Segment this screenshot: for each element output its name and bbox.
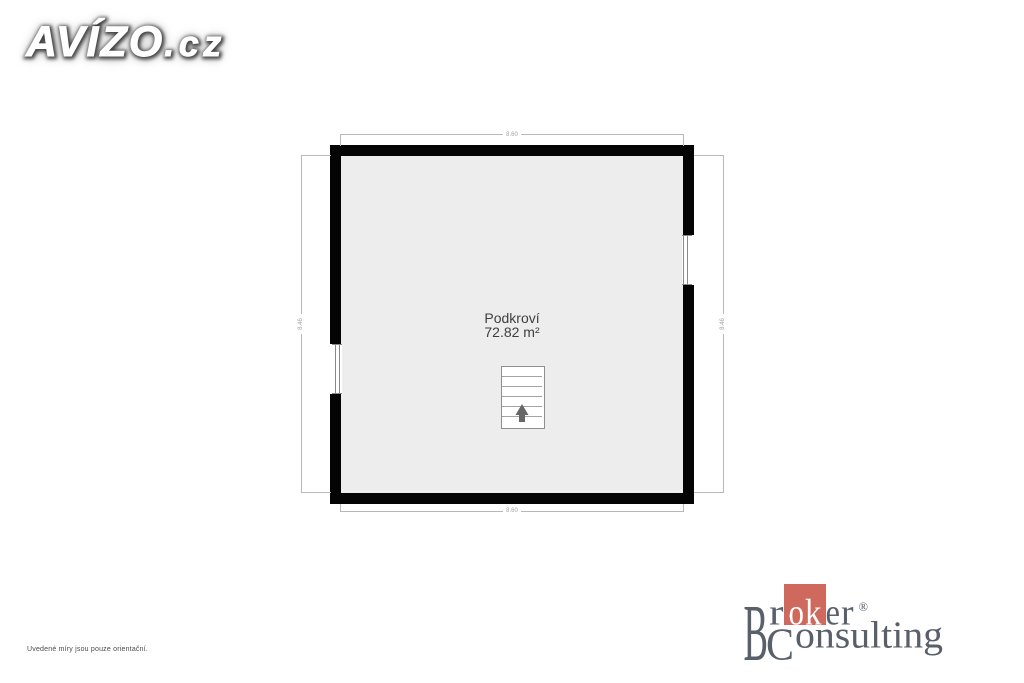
- svg-text:onsulting: onsulting: [795, 615, 943, 657]
- svg-text:C: C: [766, 618, 794, 669]
- svg-text:B: B: [744, 588, 769, 678]
- svg-text:®: ®: [859, 600, 869, 614]
